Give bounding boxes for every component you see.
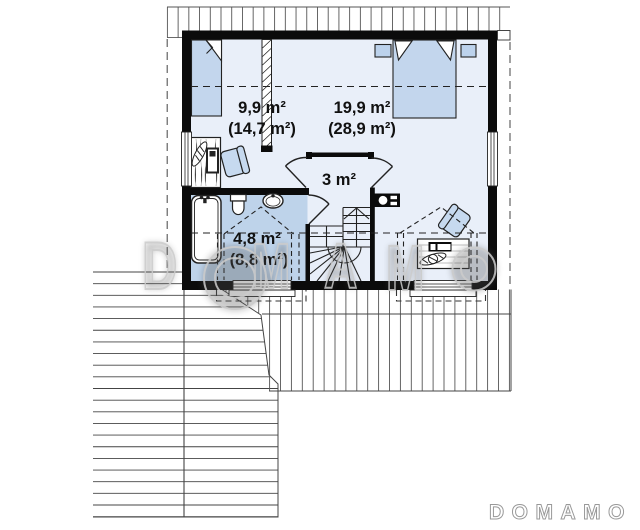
svg-text:(28,9 m²): (28,9 m²) — [328, 120, 396, 138]
svg-text:M: M — [386, 233, 424, 304]
svg-text:M: M — [252, 231, 290, 302]
svg-text:3 m²: 3 m² — [322, 171, 356, 189]
svg-text:(14,7 m²): (14,7 m²) — [228, 120, 296, 138]
svg-text:D: D — [142, 227, 177, 304]
svg-text:A: A — [324, 231, 357, 302]
svg-text:9,9 m²: 9,9 m² — [238, 99, 286, 117]
svg-text:DOMAMO: DOMAMO — [489, 501, 632, 524]
svg-text:19,9 m²: 19,9 m² — [334, 99, 391, 117]
